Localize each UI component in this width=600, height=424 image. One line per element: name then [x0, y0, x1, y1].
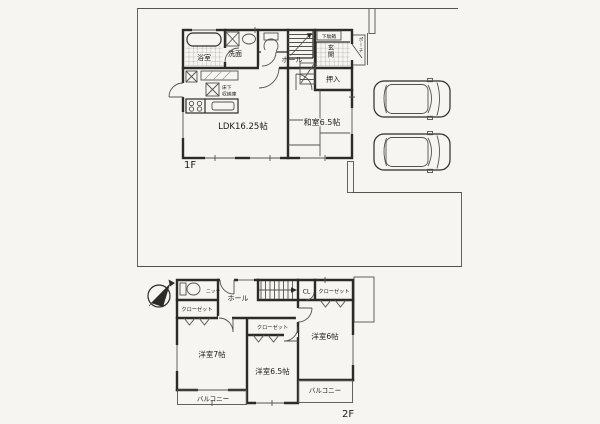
label-washitsu: 和室6.5帖	[304, 117, 341, 127]
stove-icon	[189, 101, 201, 111]
label-niche: ニッチ	[206, 289, 221, 295]
label-balcony-east: バルコニー	[309, 387, 341, 395]
label-floor-2f: 2F	[342, 409, 354, 420]
label-closet-nw: クローゼット	[181, 305, 212, 313]
sink-icon	[243, 34, 256, 44]
house-1f: 浴室 洗面 ホール 下駄箱 玄関 ポーチ 押入 和室6.5帖 LDK16.25帖…	[169, 27, 368, 171]
floorplan-canvas: 浴室 洗面 ホール 下駄箱 玄関 ポーチ 押入 和室6.5帖 LDK16.25帖…	[0, 0, 600, 424]
kitchen-sink-icon	[212, 102, 234, 110]
label-washroom: 洗面	[228, 49, 242, 58]
label-room-west: 洋室7帖	[198, 349, 226, 359]
stairs-2f	[259, 281, 297, 299]
car-icon	[374, 132, 450, 173]
bathtub-icon	[187, 33, 221, 46]
underfloor-storage-icon	[206, 83, 219, 96]
kitchen-counter	[186, 99, 238, 113]
label-genkan: 玄関	[326, 43, 334, 59]
car-icon	[374, 79, 450, 120]
washing-machine-icon	[226, 32, 239, 46]
label-shoebox: 下駄箱	[322, 33, 337, 40]
label-cl: CL	[303, 289, 311, 296]
label-bath: 浴室	[197, 53, 211, 62]
label-underfloor-1: 床下	[222, 84, 232, 91]
label-ldk: LDK16.25帖	[218, 121, 268, 132]
house-2f: ニッチ クローゼット ホール CL クローゼット クローゼット 洋室7帖 洋室6…	[175, 277, 374, 420]
label-underfloor-2: 収納庫	[222, 91, 237, 98]
north-arrow-icon	[148, 280, 175, 308]
counter-cabinet	[186, 71, 238, 82]
roof-strip	[354, 277, 374, 322]
label-porch: ポーチ	[358, 37, 363, 53]
label-closet-mid: クローゼット	[257, 323, 288, 331]
toilet-icon-2f	[180, 283, 200, 295]
label-floor-1f: 1F	[184, 160, 196, 171]
floorplan-drawing: 浴室 洗面 ホール 下駄箱 玄関 ポーチ 押入 和室6.5帖 LDK16.25帖…	[0, 0, 600, 424]
label-room-east: 洋室6帖	[311, 331, 339, 341]
label-closet-ne: クローゼット	[318, 287, 349, 295]
label-balcony-west: バルコニー	[197, 395, 229, 403]
doors-2f	[218, 278, 314, 341]
label-room-mid: 洋室6.5帖	[255, 366, 290, 376]
label-oshiire: 押入	[326, 75, 340, 84]
label-hall-1f: ホール	[282, 56, 303, 64]
label-hall-2f: ホール	[228, 295, 249, 303]
